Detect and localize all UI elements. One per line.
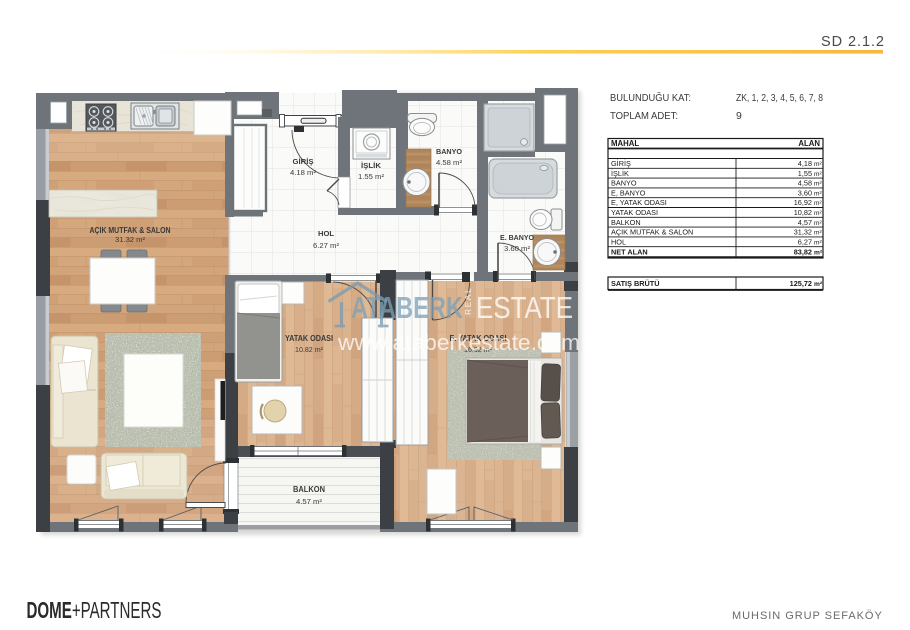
svg-text:YATAK ODASI: YATAK ODASI [285, 334, 333, 343]
svg-text:m²: m² [814, 190, 822, 197]
svg-text:6,27: 6,27 [798, 237, 812, 246]
svg-text:BALKON: BALKON [293, 485, 325, 494]
svg-text:m²: m² [814, 200, 822, 207]
svg-text:TOPLAM ADET:: TOPLAM ADET: [610, 110, 678, 122]
svg-text:10.82 m²: 10.82 m² [295, 345, 323, 354]
svg-text:125,72: 125,72 [790, 279, 812, 288]
svg-text:YATAK ODASI: YATAK ODASI [611, 208, 658, 217]
svg-text:BULUNDUĞU KAT:: BULUNDUĞU KAT: [610, 91, 691, 104]
svg-text:ESTATE: ESTATE [476, 291, 573, 325]
svg-text:E. BANYO: E. BANYO [500, 233, 534, 242]
svg-text:İŞLİK: İŞLİK [361, 161, 382, 170]
svg-text:6.27 m²: 6.27 m² [313, 243, 340, 250]
svg-text:31.32 m²: 31.32 m² [115, 235, 145, 244]
svg-text:ZK, 1, 2, 3, 4, 5, 6, 7, 8: ZK, 1, 2, 3, 4, 5, 6, 7, 8 [736, 92, 823, 104]
svg-text:SATIŞ BRÜTÜ: SATIŞ BRÜTÜ [611, 279, 660, 288]
svg-text:m²: m² [814, 239, 822, 246]
svg-text:4,58: 4,58 [798, 179, 812, 188]
svg-text:4,18: 4,18 [798, 159, 812, 168]
svg-text:MUHSIN GRUP SEFAKÖY: MUHSIN GRUP SEFAKÖY [732, 610, 884, 622]
svg-text:m²: m² [814, 161, 822, 168]
svg-text:E, YATAK ODASI: E, YATAK ODASI [611, 198, 667, 207]
svg-text:www.ataberkestate.com: www.ataberkestate.com [337, 330, 580, 355]
svg-text:m²: m² [814, 250, 823, 257]
svg-text:10,82: 10,82 [794, 208, 812, 217]
svg-text:m²: m² [814, 220, 822, 227]
svg-text:ATABERK: ATABERK [351, 291, 463, 325]
svg-text:31,32: 31,32 [794, 228, 812, 237]
svg-text:BANYO: BANYO [611, 179, 637, 188]
svg-text:E, BANYO: E, BANYO [611, 188, 646, 197]
svg-text:1.55 m²: 1.55 m² [358, 174, 385, 181]
svg-text:ALAN: ALAN [798, 139, 820, 148]
svg-text:m²: m² [814, 281, 823, 288]
svg-text:4.18 m²: 4.18 m² [290, 170, 317, 177]
svg-text:m²: m² [814, 210, 822, 217]
svg-text:İŞLİK: İŞLİK [611, 169, 629, 178]
svg-text:BANYO: BANYO [436, 147, 462, 156]
svg-text:4,57: 4,57 [798, 218, 812, 227]
svg-text:4.58 m²: 4.58 m² [436, 160, 463, 167]
svg-text:m²: m² [814, 230, 822, 237]
svg-text:NET ALAN: NET ALAN [611, 248, 648, 257]
svg-text:m²: m² [814, 171, 822, 178]
svg-text:GİRİŞ: GİRİŞ [293, 157, 314, 166]
svg-text:BALKON: BALKON [611, 218, 641, 227]
svg-text:DOME+PARTNERS: DOME+PARTNERS [27, 597, 162, 623]
svg-text:4.57 m²: 4.57 m² [296, 497, 323, 506]
svg-text:HOL: HOL [611, 237, 626, 246]
svg-text:MAHAL: MAHAL [611, 139, 639, 148]
svg-text:AÇIK MUTFAK & SALON: AÇIK MUTFAK & SALON [611, 228, 693, 237]
svg-text:1,55: 1,55 [798, 169, 812, 178]
svg-text:3.60 m²: 3.60 m² [504, 246, 531, 253]
svg-text:HOL: HOL [318, 229, 334, 238]
svg-text:83,82: 83,82 [794, 248, 812, 257]
svg-text:16,92: 16,92 [794, 198, 812, 207]
svg-text:m²: m² [814, 181, 822, 188]
svg-text:SD 2.1.2: SD 2.1.2 [821, 34, 884, 50]
svg-text:3,60: 3,60 [798, 188, 812, 197]
svg-text:GİRİŞ: GİRİŞ [611, 159, 631, 168]
svg-text:REAL: REAL [463, 287, 473, 315]
svg-text:9: 9 [736, 110, 742, 122]
svg-text:AÇIK MUTFAK & SALON: AÇIK MUTFAK & SALON [90, 226, 171, 235]
